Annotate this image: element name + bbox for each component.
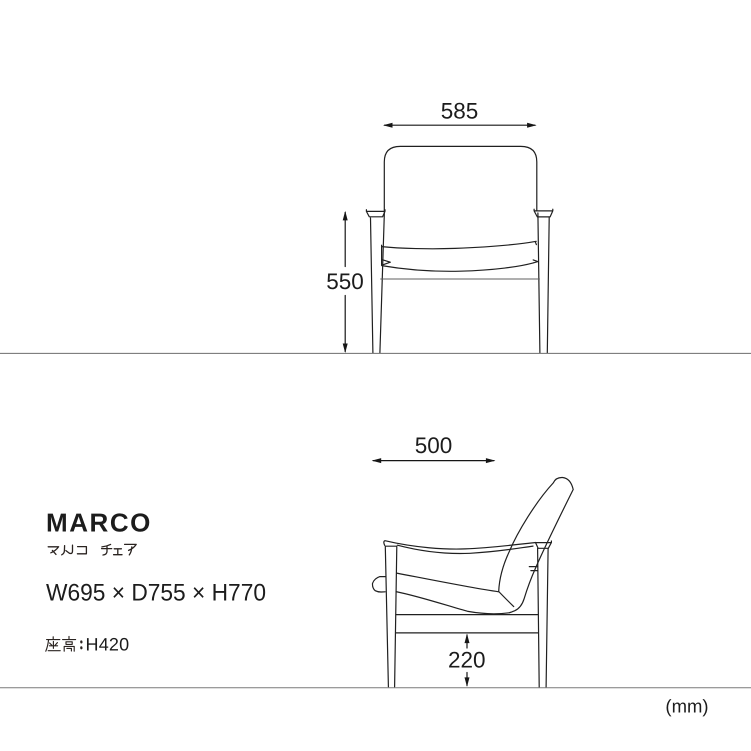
svg-text:585: 585 [441, 99, 479, 124]
svg-text:H420: H420 [86, 635, 130, 655]
svg-text:W695 × D755 × H770: W695 × D755 × H770 [46, 580, 266, 607]
svg-text:550: 550 [326, 269, 364, 294]
svg-text:220: 220 [448, 648, 486, 673]
svg-text:500: 500 [415, 433, 453, 458]
svg-text:(mm): (mm) [665, 695, 708, 716]
svg-text:MARCO: MARCO [46, 508, 152, 538]
